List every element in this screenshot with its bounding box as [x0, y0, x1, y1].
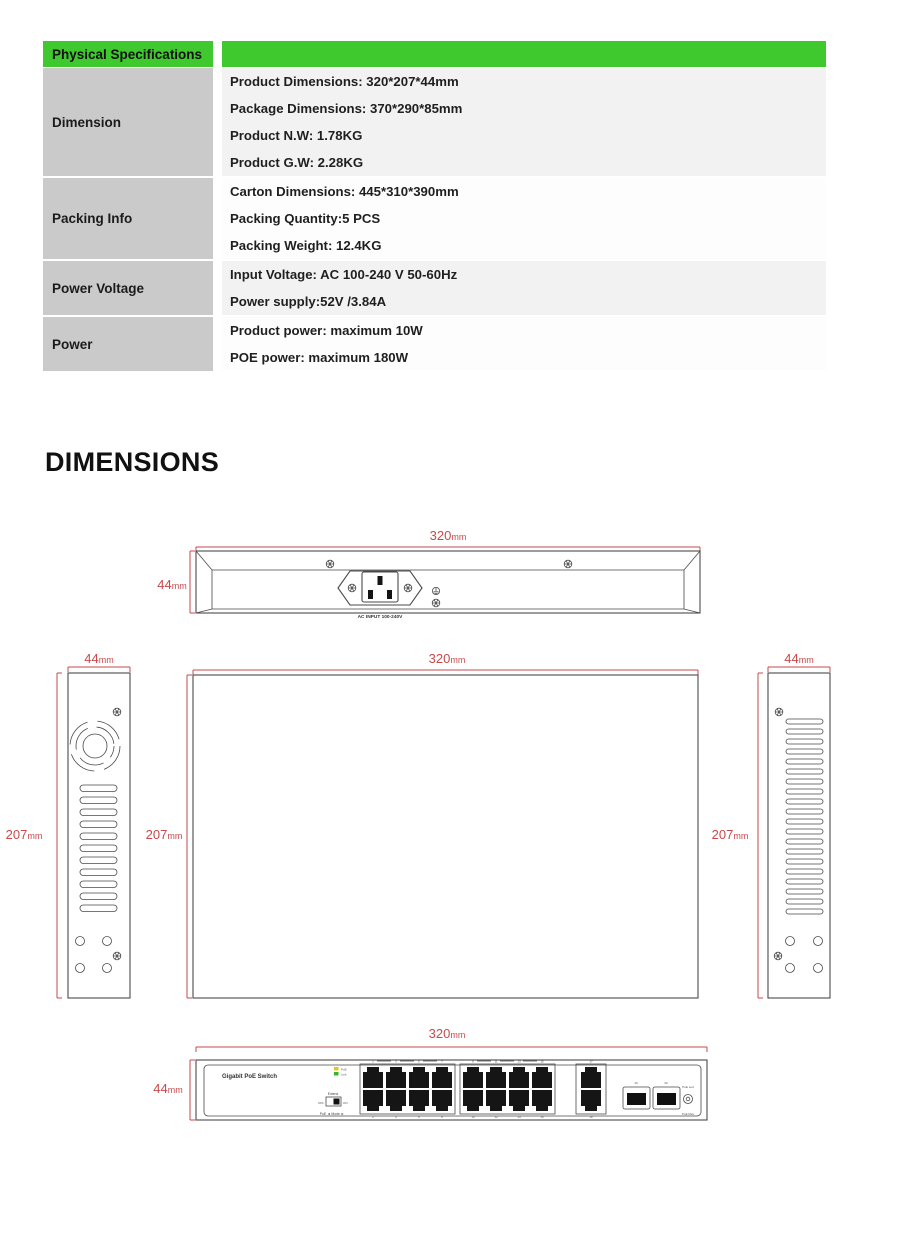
dim-label-width: 320mm	[429, 1026, 466, 1041]
sfp-label: 19	[634, 1081, 638, 1085]
panel-title: Gigabit PoE Switch	[222, 1074, 277, 1080]
port-number: 16	[540, 1115, 544, 1119]
poe-led-icon	[334, 1067, 339, 1071]
screw-icon	[113, 952, 121, 960]
port-number: 8	[441, 1115, 443, 1119]
right-side-view-drawing: 44mm	[750, 645, 900, 1015]
top-outline	[193, 675, 698, 998]
ac-inlet	[338, 571, 422, 605]
spec-row-power: Power Product power: maximum 10W POE pow…	[43, 317, 826, 371]
mounting-holes	[786, 937, 823, 973]
dim-line-height	[758, 673, 763, 998]
dip-switch-knob	[334, 1099, 340, 1105]
dim-label-height-left: 207mm	[146, 827, 183, 842]
dim-line-width	[196, 1047, 707, 1052]
spec-table-header-row: Physical Specifications	[43, 41, 826, 67]
screw-icon	[404, 584, 412, 592]
spec-value: Carton Dimensions: 445*310*390mm	[222, 178, 826, 205]
front-view-drawing: 320mm 44mm Gigabit PoE Switch PoE Link E…	[140, 1020, 740, 1130]
dim-line-width	[193, 670, 698, 675]
link-led-icon	[334, 1072, 339, 1076]
page-title: DIMENSIONS	[45, 447, 219, 478]
dim-label-width: 320mm	[430, 528, 467, 543]
front-panel	[204, 1065, 701, 1116]
extend-label: Extend	[328, 1092, 339, 1096]
dim-line-height	[57, 673, 62, 998]
ac-pin	[368, 590, 373, 599]
sfp-label: 20	[664, 1081, 668, 1085]
reset-button	[684, 1095, 693, 1104]
poe-max-label: PoE Max	[682, 1112, 695, 1116]
chassis-bevels	[196, 551, 700, 613]
spec-value: Product G.W: 2.28KG	[222, 149, 826, 176]
page: Physical Specifications Dimension Produc…	[0, 0, 900, 1255]
screw-icon	[348, 584, 356, 592]
spec-value: Product power: maximum 10W	[222, 317, 826, 344]
vent-slots	[80, 785, 117, 912]
reset-label: PoE Led	[682, 1085, 694, 1089]
fan-grill	[70, 721, 120, 771]
spec-value: Power supply:52V /3.84A	[222, 288, 826, 315]
dim-line-height	[187, 675, 192, 998]
spec-row-power-voltage: Power Voltage Input Voltage: AC 100-240 …	[43, 261, 826, 315]
dim-line-height	[190, 1060, 195, 1120]
spec-row-dimension: Dimension Product Dimensions: 320*207*44…	[43, 68, 826, 176]
sfp-slot	[627, 1093, 646, 1105]
port-number: 18	[589, 1115, 593, 1119]
spec-row-label: Power	[43, 317, 213, 371]
dim-label-height: 44mm	[157, 577, 186, 592]
dim-label-height: 44mm	[153, 1081, 182, 1096]
ac-pin	[387, 590, 392, 599]
spec-table: Physical Specifications Dimension Produc…	[43, 41, 826, 373]
screw-icon	[564, 560, 572, 568]
port-number: 4	[395, 1115, 397, 1119]
spec-row-label: Power Voltage	[43, 261, 213, 315]
dim-label-width: 44mm	[784, 651, 813, 666]
spec-row-label: Dimension	[43, 68, 213, 176]
on-label: ON	[343, 1101, 348, 1105]
port-number: 17	[589, 1060, 593, 1064]
dim-line-height	[190, 551, 195, 613]
reset-button-inner	[686, 1097, 690, 1101]
poe-led-label: PoE	[341, 1068, 347, 1072]
off-label: OFF	[318, 1101, 324, 1105]
screw-icon	[326, 560, 334, 568]
port-number: 12	[494, 1115, 498, 1119]
side-outline	[68, 673, 130, 998]
port-number: 2	[372, 1115, 374, 1119]
screw-icon	[432, 599, 440, 607]
mounting-holes	[76, 937, 112, 973]
side-outline	[768, 673, 830, 998]
chassis-outline	[196, 551, 700, 613]
vent-slots	[786, 719, 823, 914]
spec-table-header-bar	[222, 41, 826, 67]
spec-table-header: Physical Specifications	[43, 41, 213, 67]
ac-pin	[378, 576, 383, 585]
dim-line-width	[768, 667, 830, 672]
sfp-slot	[657, 1093, 676, 1105]
dim-label-height-right: 207mm	[712, 827, 749, 842]
spec-row-packing-info: Packing Info Carton Dimensions: 445*310*…	[43, 178, 826, 259]
spec-value: Packing Quantity:5 PCS	[222, 205, 826, 232]
screw-icon	[774, 952, 782, 960]
rear-view-drawing: 320mm 44mm AC INPUT 100-240V	[140, 520, 720, 630]
screw-icon	[775, 708, 783, 716]
spec-value: Input Voltage: AC 100-240 V 50-60Hz	[222, 261, 826, 288]
port-number: 11	[494, 1060, 497, 1064]
ground-icon	[432, 587, 439, 594]
screw-icon	[113, 708, 121, 716]
spec-value: Product N.W: 1.78KG	[222, 122, 826, 149]
port-number: 6	[418, 1115, 420, 1119]
spec-value: Packing Weight: 12.4KG	[222, 232, 826, 259]
dim-label-height: 207mm	[6, 827, 43, 842]
port-number: 14	[517, 1115, 521, 1119]
spec-value: POE power: maximum 180W	[222, 344, 826, 371]
port-number: 13	[517, 1060, 521, 1064]
top-view-drawing: 320mm 207mm 207mm	[140, 645, 750, 1015]
port-number: 10	[471, 1115, 475, 1119]
mode-label: PoE ◄ Mode ►	[320, 1112, 344, 1116]
dim-label-width: 320mm	[429, 651, 466, 666]
spec-value: Package Dimensions: 370*290*85mm	[222, 95, 826, 122]
ac-input-label: AC INPUT 100-240V	[358, 614, 404, 620]
dim-line-width	[68, 667, 130, 672]
port-number: 15	[540, 1060, 544, 1064]
link-led-label: Link	[341, 1073, 347, 1077]
spec-value: Product Dimensions: 320*207*44mm	[222, 68, 826, 95]
dim-label-width: 44mm	[84, 651, 113, 666]
spec-row-label: Packing Info	[43, 178, 213, 259]
